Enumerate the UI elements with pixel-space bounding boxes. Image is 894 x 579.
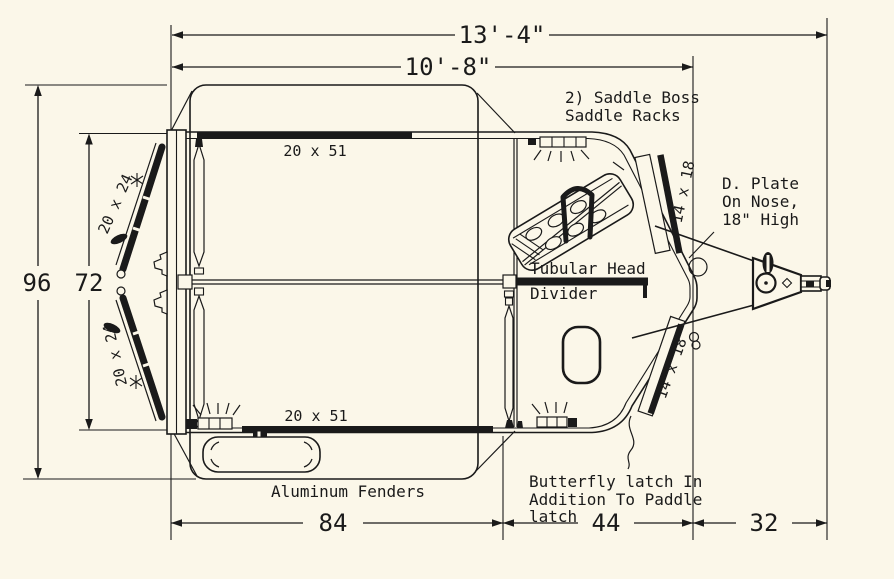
trailer-floorplan-drawing: 13'-4" 10'-8" 96 72 84 44 32 bbox=[0, 0, 894, 579]
top-window-bar bbox=[197, 132, 412, 139]
fender bbox=[203, 432, 320, 473]
saddle-racks-label-line1: 2) Saddle Boss bbox=[565, 88, 700, 107]
saddle-racks-label-line2: Saddle Racks bbox=[565, 106, 681, 125]
head-divider-label-line2: Divider bbox=[530, 284, 598, 303]
dim-body-length: 10'-8" bbox=[405, 53, 492, 81]
butterfly-label-line3: latch bbox=[529, 507, 577, 526]
head-divider-label-line1: Tubular Head bbox=[530, 259, 646, 278]
d-plate-label-line3: 18" High bbox=[722, 210, 799, 229]
dim-nose-length: 44 bbox=[592, 509, 621, 537]
butterfly-label-line1: Butterfly latch In bbox=[529, 472, 702, 491]
dim-overall-length: 13'-4" bbox=[459, 21, 546, 49]
dim-overall-width: 96 bbox=[23, 269, 52, 297]
coupler bbox=[801, 276, 831, 291]
dim-box-length: 84 bbox=[319, 509, 348, 537]
fenders-label: Aluminum Fenders bbox=[271, 482, 425, 501]
bottom-window-bar bbox=[242, 426, 493, 433]
drawing-canvas: 13'-4" 10'-8" 96 72 84 44 32 bbox=[0, 0, 894, 579]
dim-interior-width: 72 bbox=[75, 269, 104, 297]
d-plate-label-line1: D. Plate bbox=[722, 174, 799, 193]
d-plate-label-line2: On Nose, bbox=[722, 192, 799, 211]
top-window-label: 20 x 51 bbox=[283, 142, 346, 160]
dim-tongue-length: 32 bbox=[750, 509, 779, 537]
bottom-window-label: 20 x 51 bbox=[284, 407, 347, 425]
